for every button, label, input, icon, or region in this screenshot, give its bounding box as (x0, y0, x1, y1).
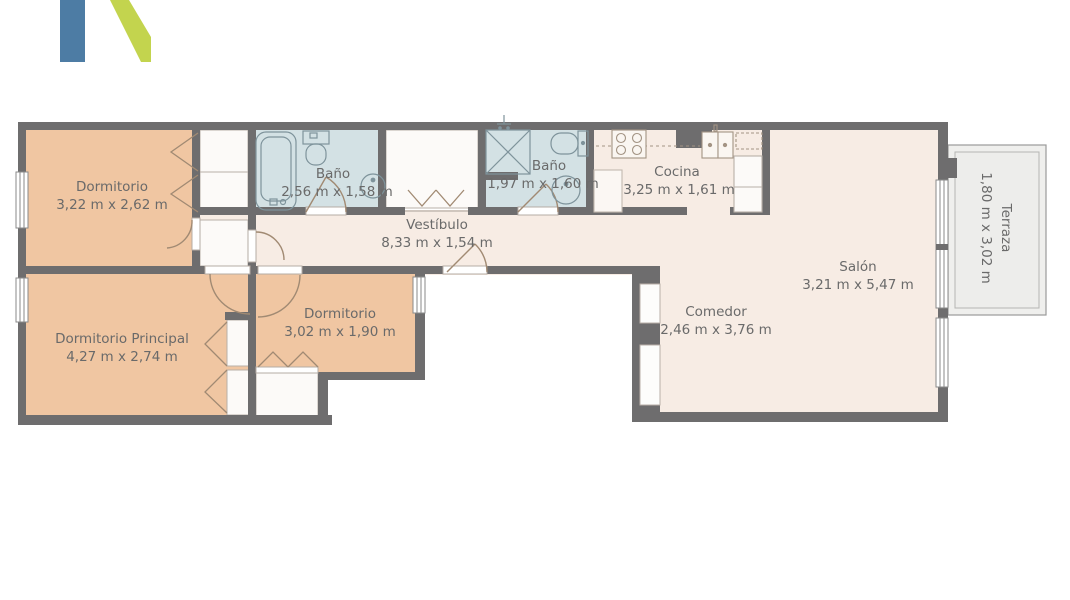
wall-segment (468, 207, 518, 215)
wall-bano1-right (378, 130, 386, 215)
wall-left (18, 322, 26, 425)
wall-dorm1-right (192, 250, 200, 266)
room-dims: 2,56 m x 1,58 m (281, 184, 393, 200)
wall-niche (640, 284, 660, 323)
wall-left (18, 228, 26, 278)
closet-front (256, 367, 318, 373)
room-dims: 3,22 m x 2,62 m (56, 197, 168, 213)
wall-bottom-left (18, 415, 332, 425)
stove-icon (612, 130, 646, 158)
room-dims: 8,33 m x 1,54 m (381, 235, 493, 251)
window-salon (936, 318, 948, 387)
room-name: Dormitorio (76, 179, 148, 195)
wall-bano1-left (248, 130, 256, 230)
dormitorio-principal-closet-upper (227, 320, 250, 366)
room-dims: 3,25 m x 1,61 m (623, 182, 735, 198)
wall-dorm2-right (415, 313, 425, 378)
comedor-niches (640, 284, 660, 405)
room-name: Baño (532, 158, 566, 174)
room-name: Vestíbulo (406, 217, 468, 233)
room-name: Dormitorio (304, 306, 376, 322)
terraza-inner (955, 152, 1039, 308)
room-name: Terraza (998, 203, 1014, 253)
room-name: Salón (839, 259, 876, 275)
window-dormitorio1 (16, 172, 28, 228)
logo-blue-bar (60, 0, 85, 62)
vestibulo-closet (386, 130, 478, 208)
wall-bottom-right (632, 412, 948, 422)
dormitorio1-closet-lower (200, 220, 248, 266)
window-dormitorio-principal (16, 278, 28, 322)
room-name: Baño (316, 166, 350, 182)
wall-segment (346, 207, 405, 215)
wall-dorm2-left (248, 266, 256, 420)
room-dims: 1,80 m x 3,02 m (978, 172, 994, 284)
brand-logo-icon (60, 0, 151, 62)
window-dormitorio2 (413, 277, 425, 313)
terrace-sliding-door (936, 180, 948, 308)
dormitorio2-floor (250, 266, 422, 378)
wall-terrace-block (940, 158, 957, 178)
wall-dorm1-right (192, 130, 200, 218)
wall-niche (640, 345, 660, 405)
room-name: Comedor (685, 304, 747, 320)
room-dims: 2,46 m x 3,76 m (660, 322, 772, 338)
terraza-area (948, 145, 1046, 315)
room-dims: 3,21 m x 5,47 m (802, 277, 914, 293)
dormitorio1-closet-upper (200, 130, 248, 212)
wall-right-bottom (938, 387, 948, 422)
dormitorio-principal-closet-lower (227, 370, 250, 415)
room-dims: 1,97 m x 1,60 m (487, 176, 599, 192)
wall-dorm2-bottom (318, 372, 425, 380)
room-name: Dormitorio Principal (55, 331, 189, 347)
wall-kitchen-right (762, 130, 770, 215)
wall-left (18, 122, 26, 172)
room-name: Cocina (654, 164, 700, 180)
wall-dorm2-right (415, 266, 425, 277)
floorplan-canvas: Dormitorio 3,22 m x 2,62 m Baño 2,56 m x… (0, 0, 1070, 600)
wall-segment (18, 266, 205, 274)
logo-green-stroke (110, 0, 151, 62)
wall-right-mid (938, 308, 948, 318)
wall-top (18, 122, 948, 130)
room-dims: 3,02 m x 1,90 m (284, 324, 396, 340)
dormitorio2-closet (256, 372, 318, 416)
wall-closet-right (318, 374, 328, 420)
room-dims: 4,27 m x 2,74 m (66, 349, 178, 365)
floorplan-page: Dormitorio 3,22 m x 2,62 m Baño 2,56 m x… (0, 0, 1070, 600)
wall-bano2-right (586, 130, 594, 215)
